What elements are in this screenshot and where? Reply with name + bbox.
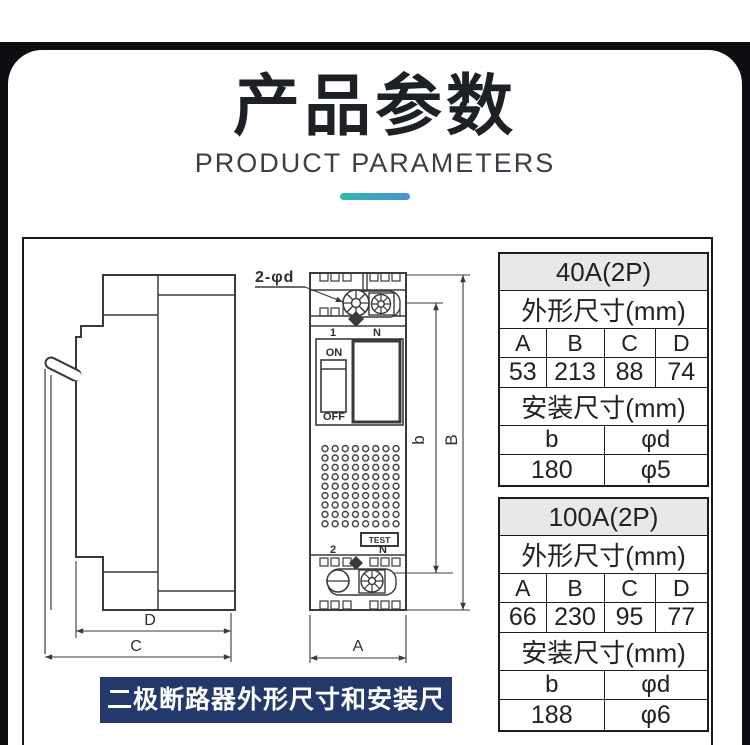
breaker-side-body xyxy=(76,275,235,610)
col-b: b xyxy=(499,671,604,700)
val-C: 88 xyxy=(604,358,655,388)
outline-size-header: 外形尺寸(mm) xyxy=(499,536,708,574)
switch-on-label: ON xyxy=(326,347,343,359)
breaker-handle xyxy=(51,363,77,376)
col-A: A xyxy=(499,574,546,603)
col-C: C xyxy=(604,574,655,603)
table-title: 40A(2P) xyxy=(499,253,708,291)
terminal-teeth xyxy=(320,273,400,609)
val-B: 230 xyxy=(546,603,604,633)
switch-off-label: OFF xyxy=(323,411,345,423)
dim-label-A: A xyxy=(353,638,364,655)
val-D: 74 xyxy=(655,358,708,388)
dim-label-C: C xyxy=(130,638,142,655)
dim-label-D: D xyxy=(144,612,156,629)
accent-underline xyxy=(340,193,410,200)
outline-size-header: 外形尺寸(mm) xyxy=(499,291,708,329)
pole-label-1: 1 xyxy=(330,327,336,339)
spec-table-100a: 100A(2P) 外形尺寸(mm) A B C D 66 230 95 77 安… xyxy=(498,497,709,732)
page-title: 产品参数 xyxy=(8,50,742,142)
front-view-drawing: 2-φd xyxy=(253,248,503,673)
bottom-terminal-screws xyxy=(327,556,396,595)
col-phid: φd xyxy=(604,671,708,700)
col-B: B xyxy=(546,329,604,358)
diagram-panel: D C 2-φd xyxy=(22,237,713,745)
top-terminal-screws xyxy=(343,290,400,326)
val-A: 53 xyxy=(499,358,546,388)
mount-size-header: 安装尺寸(mm) xyxy=(499,388,708,426)
col-B: B xyxy=(546,574,604,603)
pole-label-n-bottom: N xyxy=(379,544,387,556)
val-b: 180 xyxy=(499,455,604,487)
col-D: D xyxy=(655,329,708,358)
val-b: 188 xyxy=(499,700,604,732)
col-b: b xyxy=(499,426,604,455)
dim-label-B: B xyxy=(442,434,461,445)
col-C: C xyxy=(604,329,655,358)
val-phid: φ5 xyxy=(604,455,708,487)
val-A: 66 xyxy=(499,603,546,633)
table-title: 100A(2P) xyxy=(499,498,708,536)
side-view-drawing: D C xyxy=(28,249,248,664)
dim-label-b: b xyxy=(409,435,428,444)
title-block: 产品参数 PRODUCT PARAMETERS xyxy=(8,50,742,200)
page-subtitle: PRODUCT PARAMETERS xyxy=(8,148,742,179)
col-D: D xyxy=(655,574,708,603)
diagram-caption: 二极断路器外形尺寸和安装尺寸 xyxy=(100,677,452,723)
val-C: 95 xyxy=(604,603,655,633)
mount-size-header: 安装尺寸(mm) xyxy=(499,633,708,671)
val-D: 77 xyxy=(655,603,708,633)
col-phid: φd xyxy=(604,426,708,455)
vent-holes xyxy=(320,444,402,529)
hole-label: 2-φd xyxy=(255,269,294,286)
spec-table-40a: 40A(2P) 外形尺寸(mm) A B C D 53 213 88 74 安装… xyxy=(498,252,709,487)
content-card: 产品参数 PRODUCT PARAMETERS xyxy=(8,50,742,745)
col-A: A xyxy=(499,329,546,358)
val-B: 213 xyxy=(546,358,604,388)
pole-label-n-top: N xyxy=(373,327,381,339)
pole-label-2: 2 xyxy=(330,544,336,556)
switch-lever xyxy=(321,360,346,412)
handle-strip xyxy=(45,369,51,654)
val-phid: φ6 xyxy=(604,700,708,732)
